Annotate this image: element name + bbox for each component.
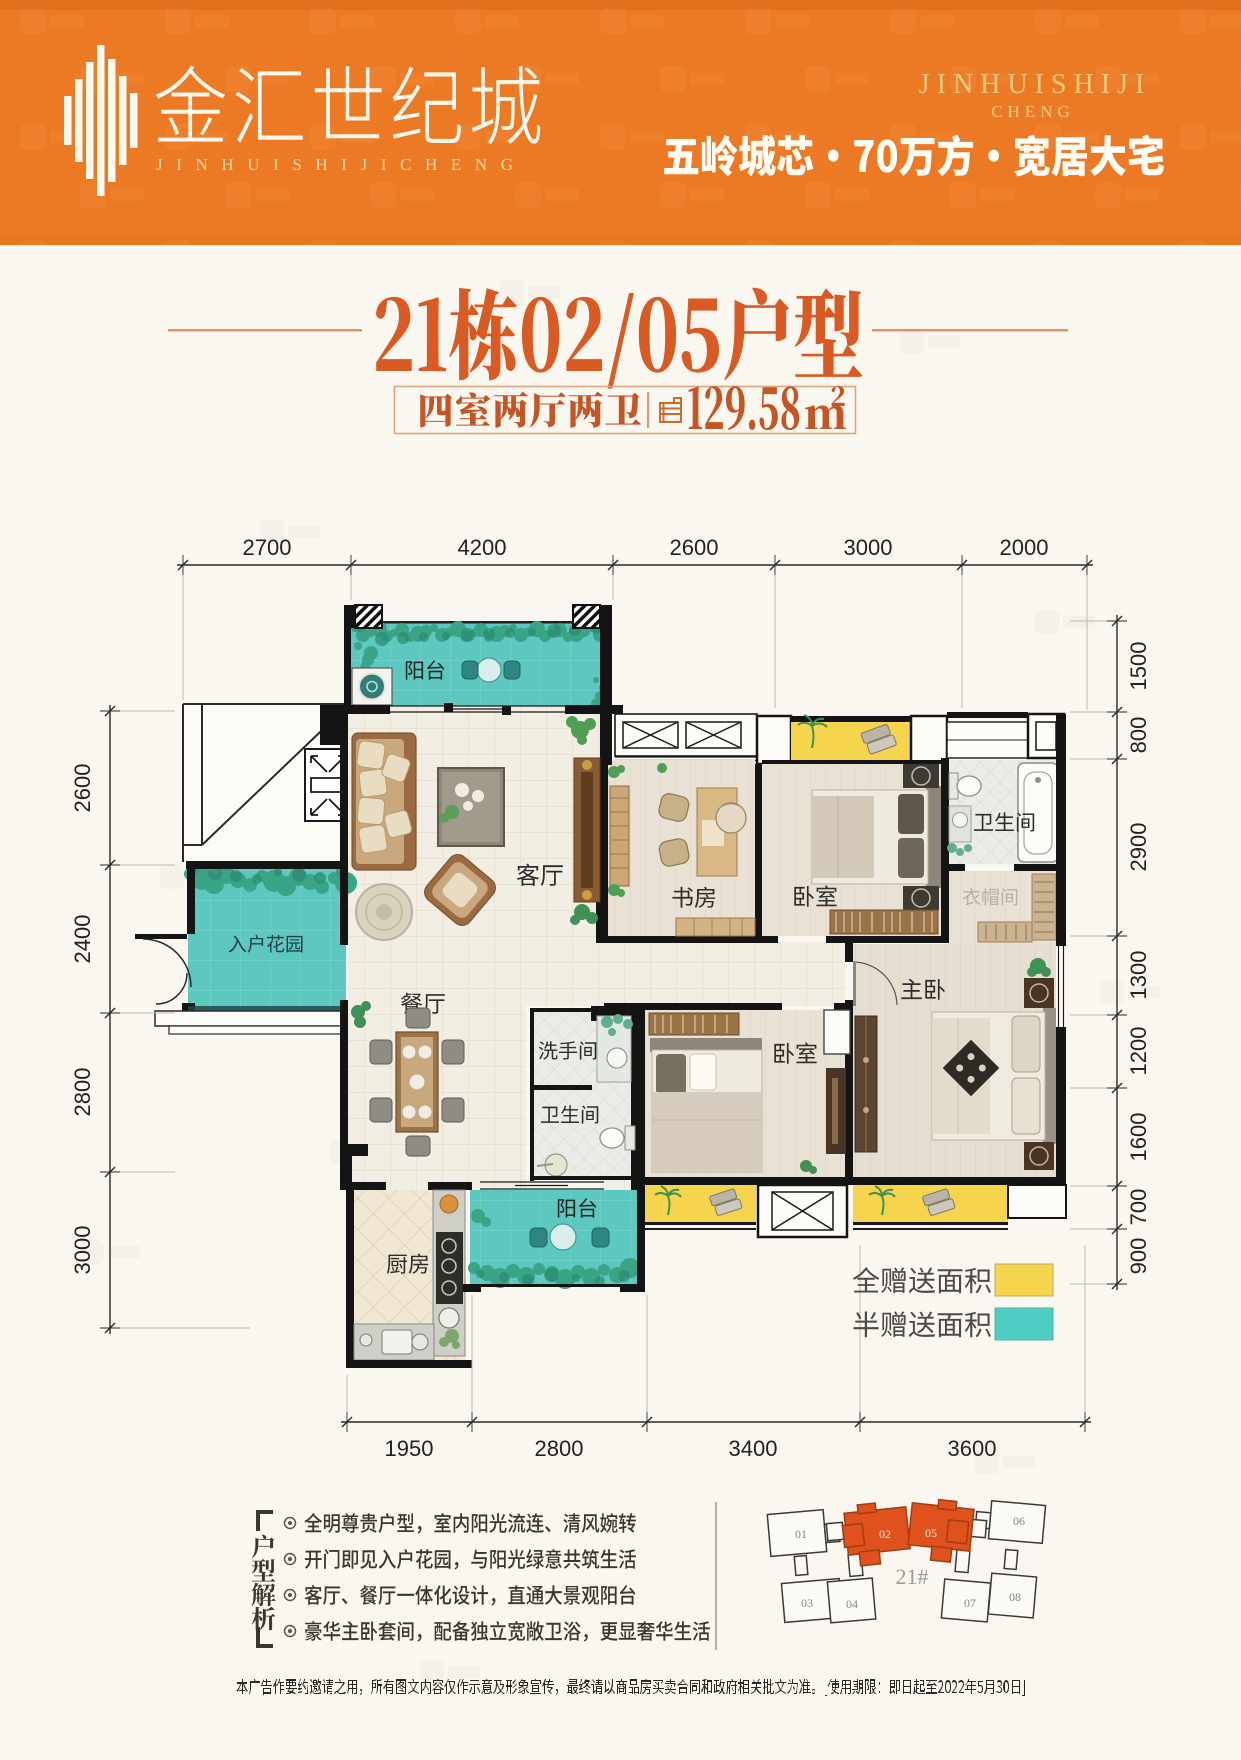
- svg-text:2800: 2800: [70, 1068, 95, 1117]
- svg-text:1300: 1300: [1126, 951, 1151, 1000]
- svg-text:02: 02: [879, 1527, 891, 1541]
- svg-text:2800: 2800: [535, 1436, 584, 1461]
- svg-text:2900: 2900: [1126, 823, 1151, 872]
- svg-text:05: 05: [925, 1526, 937, 1540]
- svg-text:3400: 3400: [729, 1436, 778, 1461]
- svg-text:1600: 1600: [1126, 1113, 1151, 1162]
- svg-text:3000: 3000: [844, 535, 893, 560]
- svg-text:01: 01: [795, 1527, 807, 1541]
- svg-text:1950: 1950: [385, 1436, 434, 1461]
- svg-text:2400: 2400: [70, 915, 95, 964]
- svg-text:800: 800: [1126, 717, 1151, 754]
- svg-text:2000: 2000: [1000, 535, 1049, 560]
- svg-text:2700: 2700: [243, 535, 292, 560]
- svg-text:1500: 1500: [1126, 642, 1151, 691]
- svg-text:1200: 1200: [1126, 1027, 1151, 1076]
- svg-text:3000: 3000: [70, 1226, 95, 1275]
- svg-text:900: 900: [1126, 1238, 1151, 1275]
- svg-text:08: 08: [1009, 1590, 1021, 1604]
- svg-text:CHENG: CHENG: [991, 102, 1075, 121]
- svg-text:JINHUISHIJI: JINHUISHIJI: [919, 69, 1152, 100]
- svg-text:2600: 2600: [70, 764, 95, 813]
- svg-text:04: 04: [846, 1597, 858, 1611]
- svg-text:03: 03: [801, 1596, 813, 1610]
- svg-text:06: 06: [1013, 1514, 1025, 1528]
- svg-text:JINHUISHIJICHENG: JINHUISHIJICHENG: [156, 155, 527, 174]
- svg-text:700: 700: [1126, 1189, 1151, 1226]
- svg-text:3600: 3600: [948, 1436, 997, 1461]
- svg-text:07: 07: [964, 1596, 976, 1610]
- svg-text:2600: 2600: [670, 535, 719, 560]
- svg-text:4200: 4200: [458, 535, 507, 560]
- svg-text:21#: 21#: [896, 1564, 929, 1589]
